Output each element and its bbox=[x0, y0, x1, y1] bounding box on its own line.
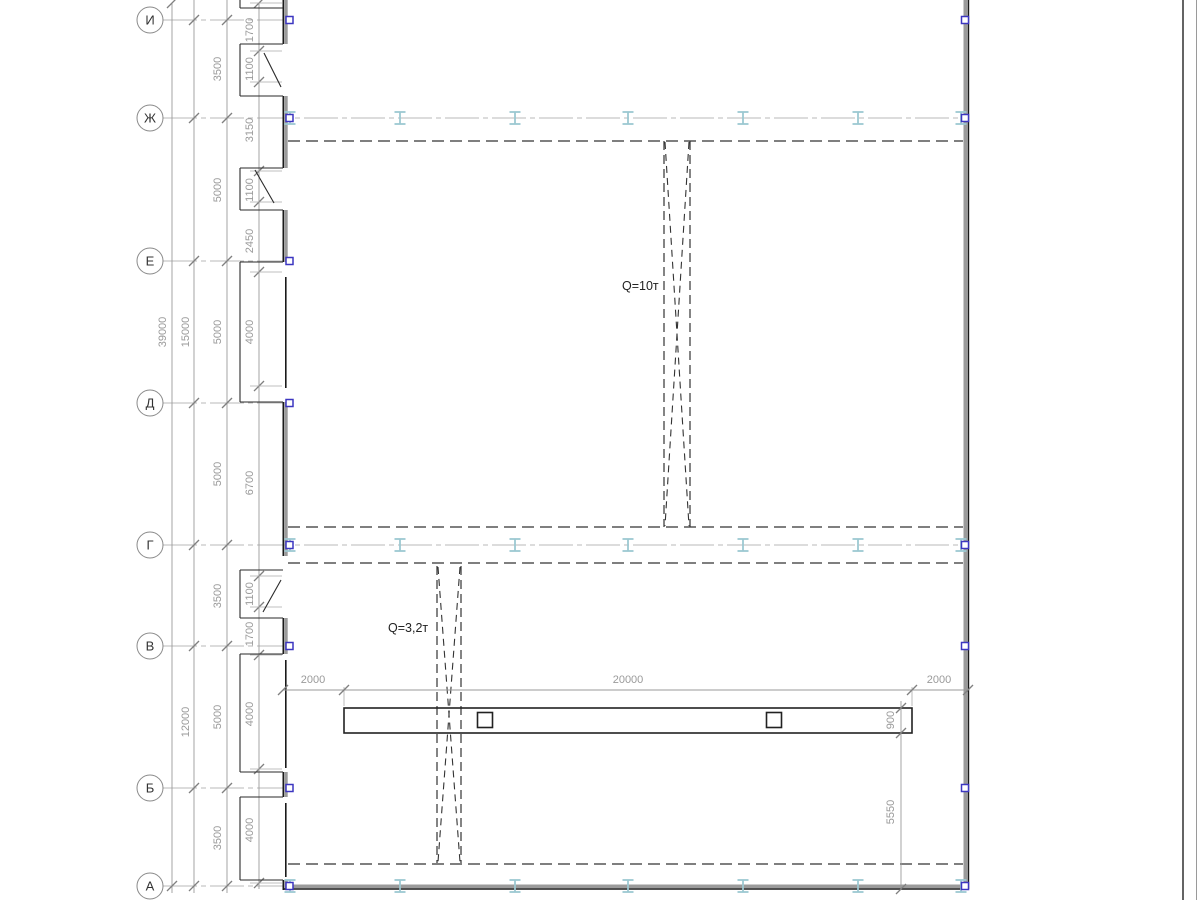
dim-beam-to-wall: 5550 bbox=[885, 800, 897, 824]
wall-anchor-icon bbox=[286, 400, 293, 407]
bottom-wall bbox=[283, 885, 969, 890]
walls bbox=[283, 0, 1196, 900]
axis-label: А bbox=[146, 879, 155, 894]
wall-anchor-icon bbox=[286, 17, 293, 24]
dim-inner-8: 1100 bbox=[244, 582, 256, 606]
overhead-dashed-lines bbox=[288, 141, 963, 864]
wall-anchor-markers bbox=[286, 17, 969, 890]
axis-label: Е bbox=[146, 254, 155, 269]
dim-spacing-4: 5000 bbox=[212, 462, 224, 486]
wall-anchor-icon bbox=[286, 883, 293, 890]
axis-bubble-v: В bbox=[137, 633, 163, 659]
dim-overall: 39000 bbox=[157, 317, 169, 348]
dim-inner-2: 1100 bbox=[244, 57, 256, 81]
monorail-beam bbox=[344, 708, 912, 733]
crane-q32: Q=3,2т bbox=[388, 566, 461, 863]
dim-spacing-7: 3500 bbox=[212, 826, 224, 850]
steel-columns bbox=[285, 112, 967, 892]
dimension-bottom: 2000 20000 2000 bbox=[278, 674, 973, 706]
beam-outline bbox=[344, 708, 912, 733]
right-wall bbox=[964, 0, 969, 889]
door-leaf bbox=[255, 170, 274, 203]
axis-bubble-g: Г bbox=[137, 532, 163, 558]
floor-plan-canvas: И Ж Е Д Г В Б А bbox=[0, 0, 1200, 900]
dim-inner-10: 4000 bbox=[244, 702, 256, 726]
dim-bottom-center: 20000 bbox=[613, 674, 644, 686]
wall-anchor-icon bbox=[286, 643, 293, 650]
wall-anchor-icon bbox=[286, 115, 293, 122]
dim-group-1: 15000 bbox=[180, 317, 192, 348]
axis-bubble-a: А bbox=[137, 873, 163, 899]
dim-inner-4: 1100 bbox=[244, 178, 256, 202]
dim-inner-11: 4000 bbox=[244, 818, 256, 842]
wall-anchor-icon bbox=[962, 542, 969, 549]
axis-bubble-i: И bbox=[137, 7, 163, 33]
cad-drawing-viewport: И Ж Е Д Г В Б А bbox=[0, 0, 1200, 900]
axis-bubble-d: Д bbox=[137, 390, 163, 416]
dim-inner-5: 2450 bbox=[244, 229, 256, 253]
axis-label: В bbox=[146, 639, 155, 654]
axis-label: Ж bbox=[144, 111, 156, 126]
wall-anchor-icon bbox=[962, 785, 969, 792]
axis-bubble-zh: Ж bbox=[137, 105, 163, 131]
crane-capacity-label: Q=10т bbox=[622, 279, 659, 293]
axis-bubble-e: Е bbox=[137, 248, 163, 274]
beam-trolley-2 bbox=[767, 713, 782, 728]
dim-spacing-1: 3500 bbox=[212, 57, 224, 81]
dimension-chains-left: 39000 15000 12000 3500 5000 5000 5000 35… bbox=[157, 0, 282, 893]
wall-anchor-icon bbox=[962, 643, 969, 650]
wall-anchor-icon bbox=[286, 542, 293, 549]
axis-label: Д bbox=[146, 396, 155, 411]
dim-inner-9: 1700 bbox=[244, 622, 256, 646]
wall-anchor-icon bbox=[962, 17, 969, 24]
dim-spacing-5: 3500 bbox=[212, 584, 224, 608]
axis-label: Б bbox=[146, 781, 155, 796]
dim-bottom-left: 2000 bbox=[301, 674, 325, 686]
dim-spacing-2: 5000 bbox=[212, 178, 224, 202]
dim-inner-7: 6700 bbox=[244, 471, 256, 495]
crane-q10: Q=10т bbox=[622, 141, 690, 527]
dimension-beam-right: 900 5550 bbox=[885, 701, 906, 894]
wall-anchor-icon bbox=[962, 883, 969, 890]
wall-anchor-icon bbox=[286, 785, 293, 792]
dim-spacing-3: 5000 bbox=[212, 320, 224, 344]
dim-inner-3: 3150 bbox=[244, 118, 256, 142]
axis-bubble-b: Б bbox=[137, 775, 163, 801]
dim-bottom-right: 2000 bbox=[927, 674, 951, 686]
crane-capacity-label: Q=3,2т bbox=[388, 621, 428, 635]
dim-ticks-groups bbox=[189, 15, 232, 891]
dim-group-2: 12000 bbox=[180, 707, 192, 738]
wall-anchor-icon bbox=[962, 115, 969, 122]
dim-inner-6: 4000 bbox=[244, 320, 256, 344]
beam-trolley-1 bbox=[478, 713, 493, 728]
wall-anchor-icon bbox=[286, 258, 293, 265]
dim-inner-1: 1700 bbox=[244, 18, 256, 42]
axis-label: И bbox=[145, 13, 154, 28]
axis-label: Г bbox=[146, 538, 153, 553]
dim-spacing-6: 5000 bbox=[212, 705, 224, 729]
dim-beam-height: 900 bbox=[885, 711, 897, 729]
